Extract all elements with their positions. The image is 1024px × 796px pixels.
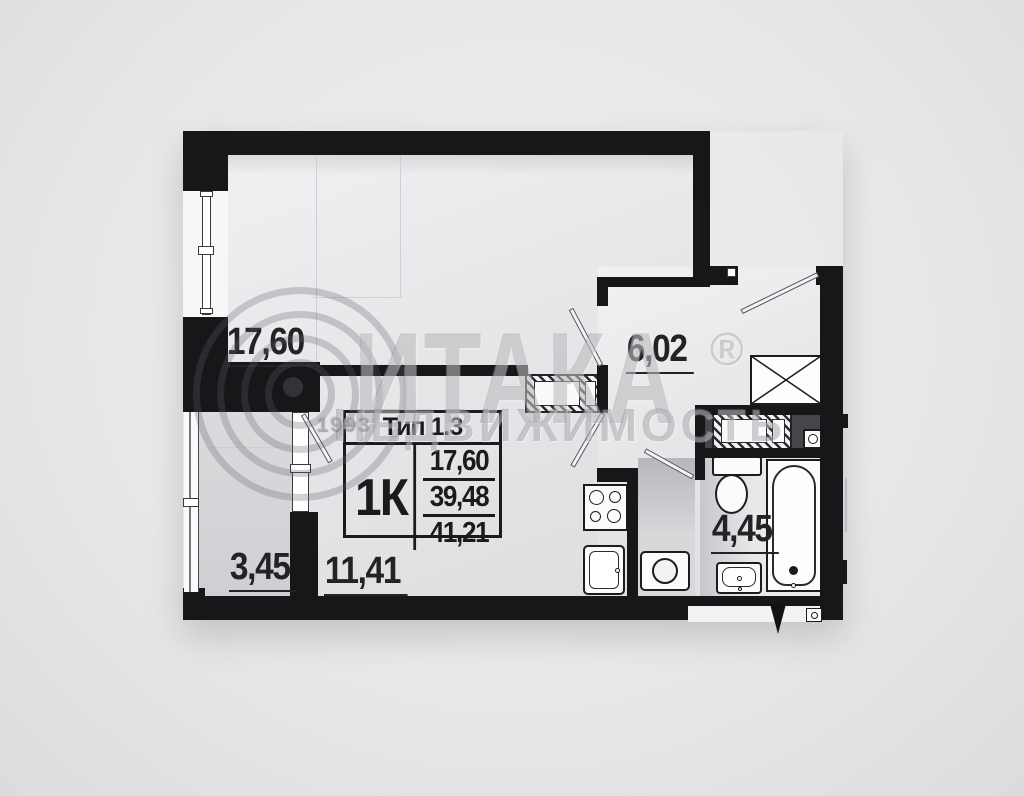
balcony-glazing-tick — [183, 498, 199, 507]
basin-dot — [738, 587, 742, 591]
watermark-subtitle: НЕДВИЖИМОСТЬ — [333, 402, 786, 448]
floor-seam — [400, 152, 401, 297]
doorstep-box — [806, 608, 822, 622]
burner — [590, 511, 601, 522]
kitchen-sink-icon — [583, 545, 625, 595]
sink-faucet-dot — [615, 568, 620, 573]
wall-kitchen-nook-top — [597, 468, 638, 482]
unit-area-cell: 39,48 — [423, 478, 495, 514]
section-arrow — [770, 604, 786, 634]
burner — [609, 491, 621, 503]
washer-drum — [652, 558, 678, 584]
doorstep-dot — [811, 612, 818, 619]
kitchen-area-label: 11,41 — [324, 552, 407, 596]
top-wall-shadow — [206, 155, 693, 175]
bathroom-sink-icon — [716, 562, 762, 594]
wall-kitchen-niche — [627, 482, 638, 598]
living-window-cap — [200, 308, 213, 314]
watermark-year: 1993 — [316, 414, 371, 435]
wall-hallway-top — [598, 277, 710, 287]
bathtub-tap-dot — [791, 583, 796, 588]
vent-grille-circle — [808, 434, 818, 444]
wall-bump — [838, 560, 847, 584]
wall-bump — [840, 414, 848, 428]
watermark-logo-dot — [283, 377, 303, 397]
wall-living-right — [693, 148, 710, 287]
wall-top — [183, 131, 710, 155]
washing-machine-icon — [640, 551, 690, 591]
exterior-landing-strip — [688, 606, 820, 622]
entrance-door-frame-plate — [727, 268, 736, 277]
unit-total-area-cell: 41,21 — [423, 514, 495, 550]
floorplan-page: { "watermark": { "brand": "ИТАКА", "regi… — [0, 0, 1024, 796]
wall-left-upper — [183, 131, 228, 193]
stove-icon — [583, 484, 628, 531]
burner — [607, 509, 621, 523]
living-window-transom — [198, 246, 214, 255]
living-window-cap — [200, 191, 213, 197]
wardrobe-icon — [750, 355, 822, 405]
exterior-ledge-line — [845, 478, 847, 532]
toilet-icon — [712, 456, 762, 476]
wall-door-stub-upper — [597, 277, 608, 306]
bathroom-area-label: 4,45 — [711, 510, 779, 554]
watermark-registered-icon: ® — [710, 326, 744, 372]
burner — [589, 490, 604, 505]
basin-dot — [737, 576, 742, 581]
balcony-area-label: 3,45 — [229, 548, 297, 592]
bathtub-drain — [789, 566, 798, 575]
